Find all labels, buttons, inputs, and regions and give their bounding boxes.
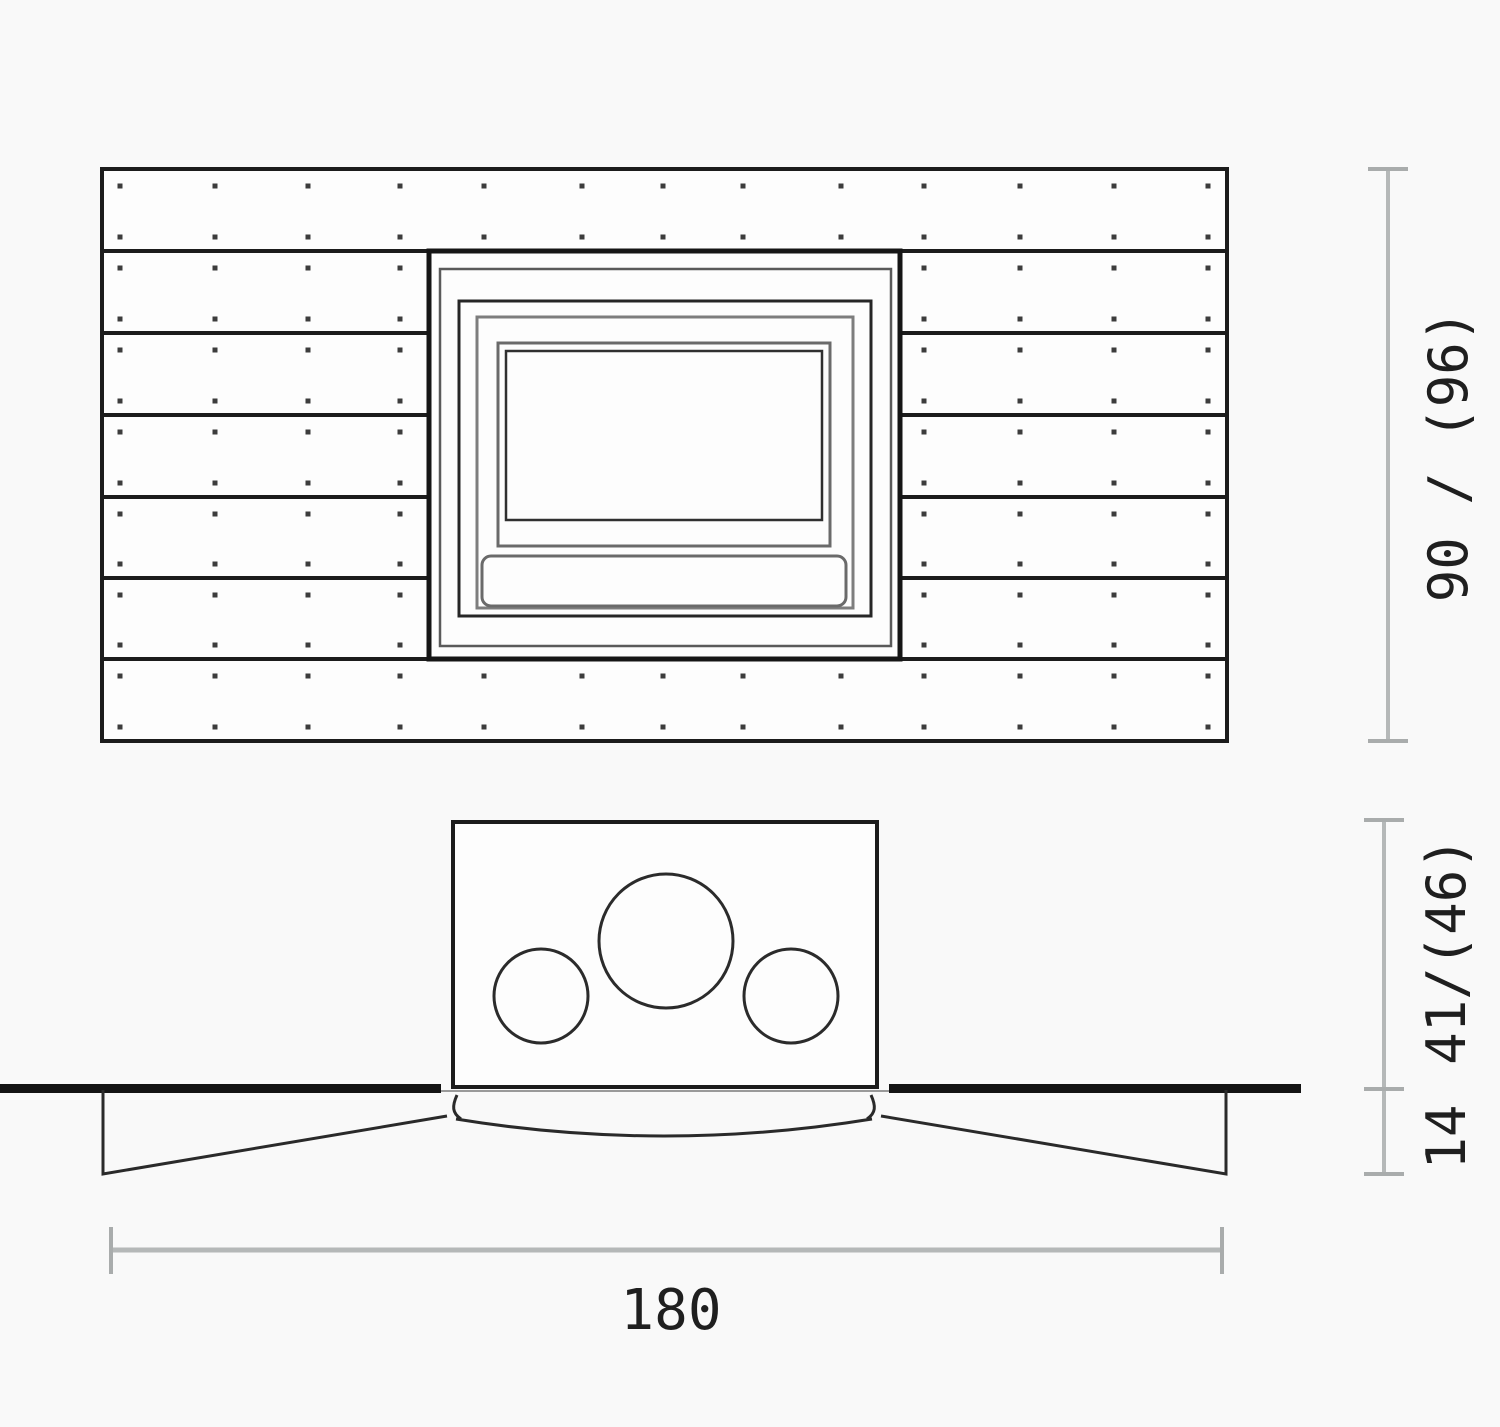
screw-dot [1206, 593, 1211, 598]
screw-dot [306, 674, 311, 679]
screw-dot [118, 674, 123, 679]
screw-dot [922, 643, 927, 648]
screw-dot [306, 399, 311, 404]
screw-dot [213, 430, 218, 435]
screw-dot [1206, 399, 1211, 404]
screw-dot [1018, 481, 1023, 486]
screw-dot [306, 266, 311, 271]
screw-dot [398, 235, 403, 240]
screw-dot [741, 674, 746, 679]
dim-label-depth-upper: 41/(46) [1420, 837, 1474, 1065]
screw-dot [1018, 512, 1023, 517]
dim-label-width: 180 [620, 1283, 721, 1339]
screw-dot [661, 184, 666, 189]
screw-dot [118, 399, 123, 404]
screw-dot [482, 235, 487, 240]
screw-dot [398, 184, 403, 189]
screw-dot [398, 643, 403, 648]
screw-dot [1206, 512, 1211, 517]
screw-dot [118, 266, 123, 271]
screw-dot [922, 399, 927, 404]
stove-insert-front [429, 251, 900, 659]
screw-dot [1206, 674, 1211, 679]
screw-dot [118, 184, 123, 189]
screw-dot [398, 399, 403, 404]
screw-dot [118, 348, 123, 353]
plan-section [0, 822, 1301, 1174]
screw-dot [661, 235, 666, 240]
screw-dot [1206, 348, 1211, 353]
screw-dot [306, 643, 311, 648]
skirt-center-arc [456, 1119, 872, 1136]
technical-drawing-canvas: 90 / (96) 41/(46) 14 180 [0, 0, 1500, 1427]
screw-dot [922, 674, 927, 679]
screw-dot [306, 430, 311, 435]
screw-dot [1112, 399, 1117, 404]
screw-dot [398, 725, 403, 730]
screw-dot [398, 481, 403, 486]
screw-dot [1206, 317, 1211, 322]
screw-dot [213, 399, 218, 404]
screw-dot [398, 562, 403, 567]
hearth-skirt [103, 1090, 1226, 1174]
screw-dot [922, 235, 927, 240]
screw-dot [1112, 674, 1117, 679]
screw-dot [398, 266, 403, 271]
screw-dot [922, 266, 927, 271]
skirt-left-hook [454, 1095, 461, 1119]
screw-dot [118, 430, 123, 435]
screw-dot [1018, 562, 1023, 567]
screw-dot [839, 674, 844, 679]
wall-line-left [0, 1084, 441, 1093]
screw-dot [922, 317, 927, 322]
screw-dot [1206, 481, 1211, 486]
screw-dot [398, 512, 403, 517]
screw-dot [1206, 725, 1211, 730]
screw-dot [922, 512, 927, 517]
screw-dot [839, 725, 844, 730]
screw-dot [1206, 430, 1211, 435]
screw-dot [482, 184, 487, 189]
skirt-right-edge [881, 1090, 1226, 1174]
screw-dot [118, 725, 123, 730]
screw-dot [1018, 399, 1023, 404]
screw-dot [741, 184, 746, 189]
skirt-right-hook [867, 1095, 874, 1119]
screw-dot [1112, 317, 1117, 322]
screw-dot [118, 562, 123, 567]
front-elevation [102, 169, 1227, 741]
screw-dot [398, 348, 403, 353]
screw-dot [306, 235, 311, 240]
screw-dot [213, 317, 218, 322]
screw-dot [213, 512, 218, 517]
screw-dot [306, 512, 311, 517]
screw-dot [1112, 266, 1117, 271]
dim-label-depth-lower: 14 [1420, 1104, 1474, 1169]
screw-dot [213, 266, 218, 271]
screw-dot [922, 348, 927, 353]
screw-dot [1018, 725, 1023, 730]
screw-dot [482, 725, 487, 730]
screw-dot [1018, 674, 1023, 679]
screw-dot [398, 430, 403, 435]
screw-dot [741, 725, 746, 730]
screw-dot [398, 593, 403, 598]
screw-dot [306, 481, 311, 486]
screw-dot [213, 593, 218, 598]
screw-dot [306, 562, 311, 567]
screw-dot [213, 674, 218, 679]
screw-dot [1206, 235, 1211, 240]
screw-dot [1112, 481, 1117, 486]
screw-dot [661, 674, 666, 679]
screw-dot [1206, 184, 1211, 189]
screw-dot [1206, 266, 1211, 271]
screw-dot [482, 674, 487, 679]
screw-dot [118, 593, 123, 598]
screw-dot [118, 481, 123, 486]
screw-dot [398, 674, 403, 679]
screw-dot [306, 184, 311, 189]
screw-dot [213, 348, 218, 353]
screw-dot [839, 184, 844, 189]
screw-dot [1112, 184, 1117, 189]
screw-dot [213, 481, 218, 486]
screw-dot [306, 725, 311, 730]
screw-dot [118, 235, 123, 240]
screw-dot [1112, 593, 1117, 598]
screw-dot [398, 317, 403, 322]
screw-dot [741, 235, 746, 240]
screw-dot [1018, 593, 1023, 598]
screw-dot [213, 725, 218, 730]
screw-dot [306, 317, 311, 322]
dim-label-height: 90 / (96) [1422, 310, 1476, 603]
screw-dot [1018, 643, 1023, 648]
screw-dot [118, 317, 123, 322]
skirt-left-edge [103, 1090, 447, 1174]
drawing-svg [0, 0, 1500, 1427]
screw-dot [839, 235, 844, 240]
screw-dot [118, 643, 123, 648]
screw-dot [1112, 562, 1117, 567]
screw-dot [1112, 235, 1117, 240]
screw-dot [1206, 562, 1211, 567]
screw-dot [1112, 512, 1117, 517]
screw-dot [661, 725, 666, 730]
screw-dot [580, 674, 585, 679]
screw-dot [580, 235, 585, 240]
screw-dot [1112, 643, 1117, 648]
screw-dot [1206, 643, 1211, 648]
screw-dot [922, 481, 927, 486]
screw-dot [213, 184, 218, 189]
screw-dot [922, 593, 927, 598]
screw-dot [306, 593, 311, 598]
screw-dot [922, 430, 927, 435]
screw-dot [1018, 348, 1023, 353]
screw-dot [1018, 266, 1023, 271]
screw-dot [922, 562, 927, 567]
screw-dot [213, 643, 218, 648]
screw-dot [118, 512, 123, 517]
screw-dot [1018, 235, 1023, 240]
screw-dot [580, 725, 585, 730]
screw-dot [1018, 430, 1023, 435]
screw-dot [1112, 430, 1117, 435]
screw-dot [922, 725, 927, 730]
screw-dot [1112, 725, 1117, 730]
screw-dot [213, 562, 218, 567]
screw-dot [1112, 348, 1117, 353]
screw-dot [213, 235, 218, 240]
screw-dot [1018, 317, 1023, 322]
screw-dot [580, 184, 585, 189]
screw-dot [1018, 184, 1023, 189]
screw-dot [922, 184, 927, 189]
wall-line-right [889, 1084, 1301, 1093]
screw-dot [306, 348, 311, 353]
